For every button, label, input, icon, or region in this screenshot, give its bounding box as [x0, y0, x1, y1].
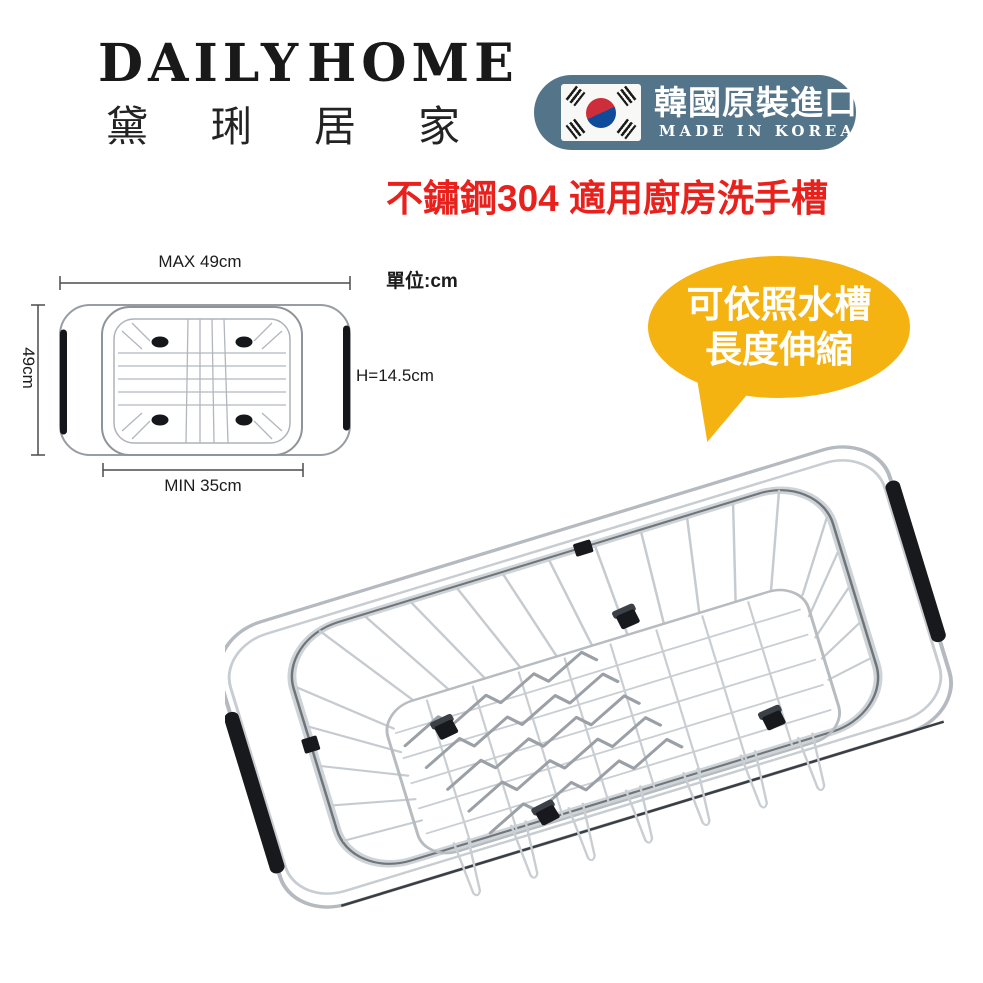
taegeuk-icon	[586, 98, 616, 128]
badge-text: 韓國原裝進口 MADE IN KOREA	[654, 85, 856, 140]
product-photo-illustration	[225, 415, 983, 960]
side-wall-wires	[295, 517, 877, 843]
rack-feet	[152, 337, 253, 426]
depth-label: 49cm	[18, 336, 38, 400]
brand-logo-english: DAILY HOME	[98, 36, 494, 90]
unit-label: 單位:cm	[386, 266, 458, 293]
badge-label-chinese: 韓國原裝進口	[654, 85, 856, 121]
headline: 不鏽鋼304 適用廚房洗手槽	[386, 168, 828, 222]
korea-flag-icon	[561, 84, 641, 141]
trigram-icon	[566, 86, 586, 107]
brand-word-daily: DAILY	[98, 38, 303, 90]
callout-line-1: 可依照水槽	[648, 282, 910, 327]
left-handle-grip	[232, 718, 278, 867]
badge-label-english: MADE IN KOREA	[654, 122, 856, 140]
brand-name-chinese: 黛琍居家	[106, 106, 494, 148]
brand-logo: DAILY HOME 黛琍居家	[98, 36, 494, 148]
trigram-icon	[566, 119, 586, 140]
right-handle-grip	[893, 487, 939, 636]
max-width-label: MAX 49cm	[110, 252, 290, 272]
trigram-icon	[617, 86, 637, 107]
height-label: H=14.5cm	[356, 366, 434, 386]
callout-line-2: 長度伸縮	[648, 327, 910, 372]
brand-word-home: HOME	[307, 38, 519, 90]
product-banner: DAILY HOME 黛琍居家 韓國原裝進口 MADE IN KOREA 不鏽鋼…	[0, 0, 983, 983]
made-in-korea-badge: 韓國原裝進口 MADE IN KOREA	[534, 75, 856, 150]
trigram-icon	[617, 119, 637, 140]
callout-bubble: 可依照水槽 長度伸縮	[648, 256, 910, 398]
product-photo	[225, 415, 983, 960]
